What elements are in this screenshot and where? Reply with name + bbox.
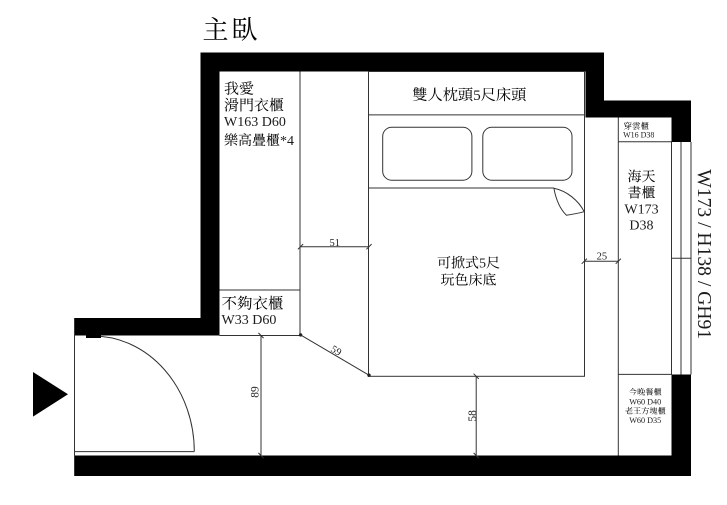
svg-text:W33 D60: W33 D60: [222, 313, 277, 328]
svg-text:25: 25: [597, 252, 608, 263]
svg-text:W60 D40: W60 D40: [629, 398, 661, 407]
svg-text:59: 59: [328, 344, 343, 359]
svg-text:W60 D35: W60 D35: [629, 416, 661, 425]
svg-text:*4: *4: [280, 134, 294, 149]
svg-text:51: 51: [330, 238, 341, 249]
svg-text:89: 89: [250, 386, 262, 398]
svg-text:W16 D38: W16 D38: [623, 131, 654, 140]
svg-text:5: 5: [479, 257, 486, 272]
svg-text:58: 58: [467, 410, 479, 422]
svg-text:D38: D38: [629, 218, 653, 233]
svg-text:W173: W173: [624, 202, 658, 217]
svg-text:5: 5: [473, 87, 481, 104]
svg-text:W163 D60: W163 D60: [224, 115, 286, 130]
svg-text:W173 / H138 / GH91: W173 / H138 / GH91: [693, 169, 714, 339]
